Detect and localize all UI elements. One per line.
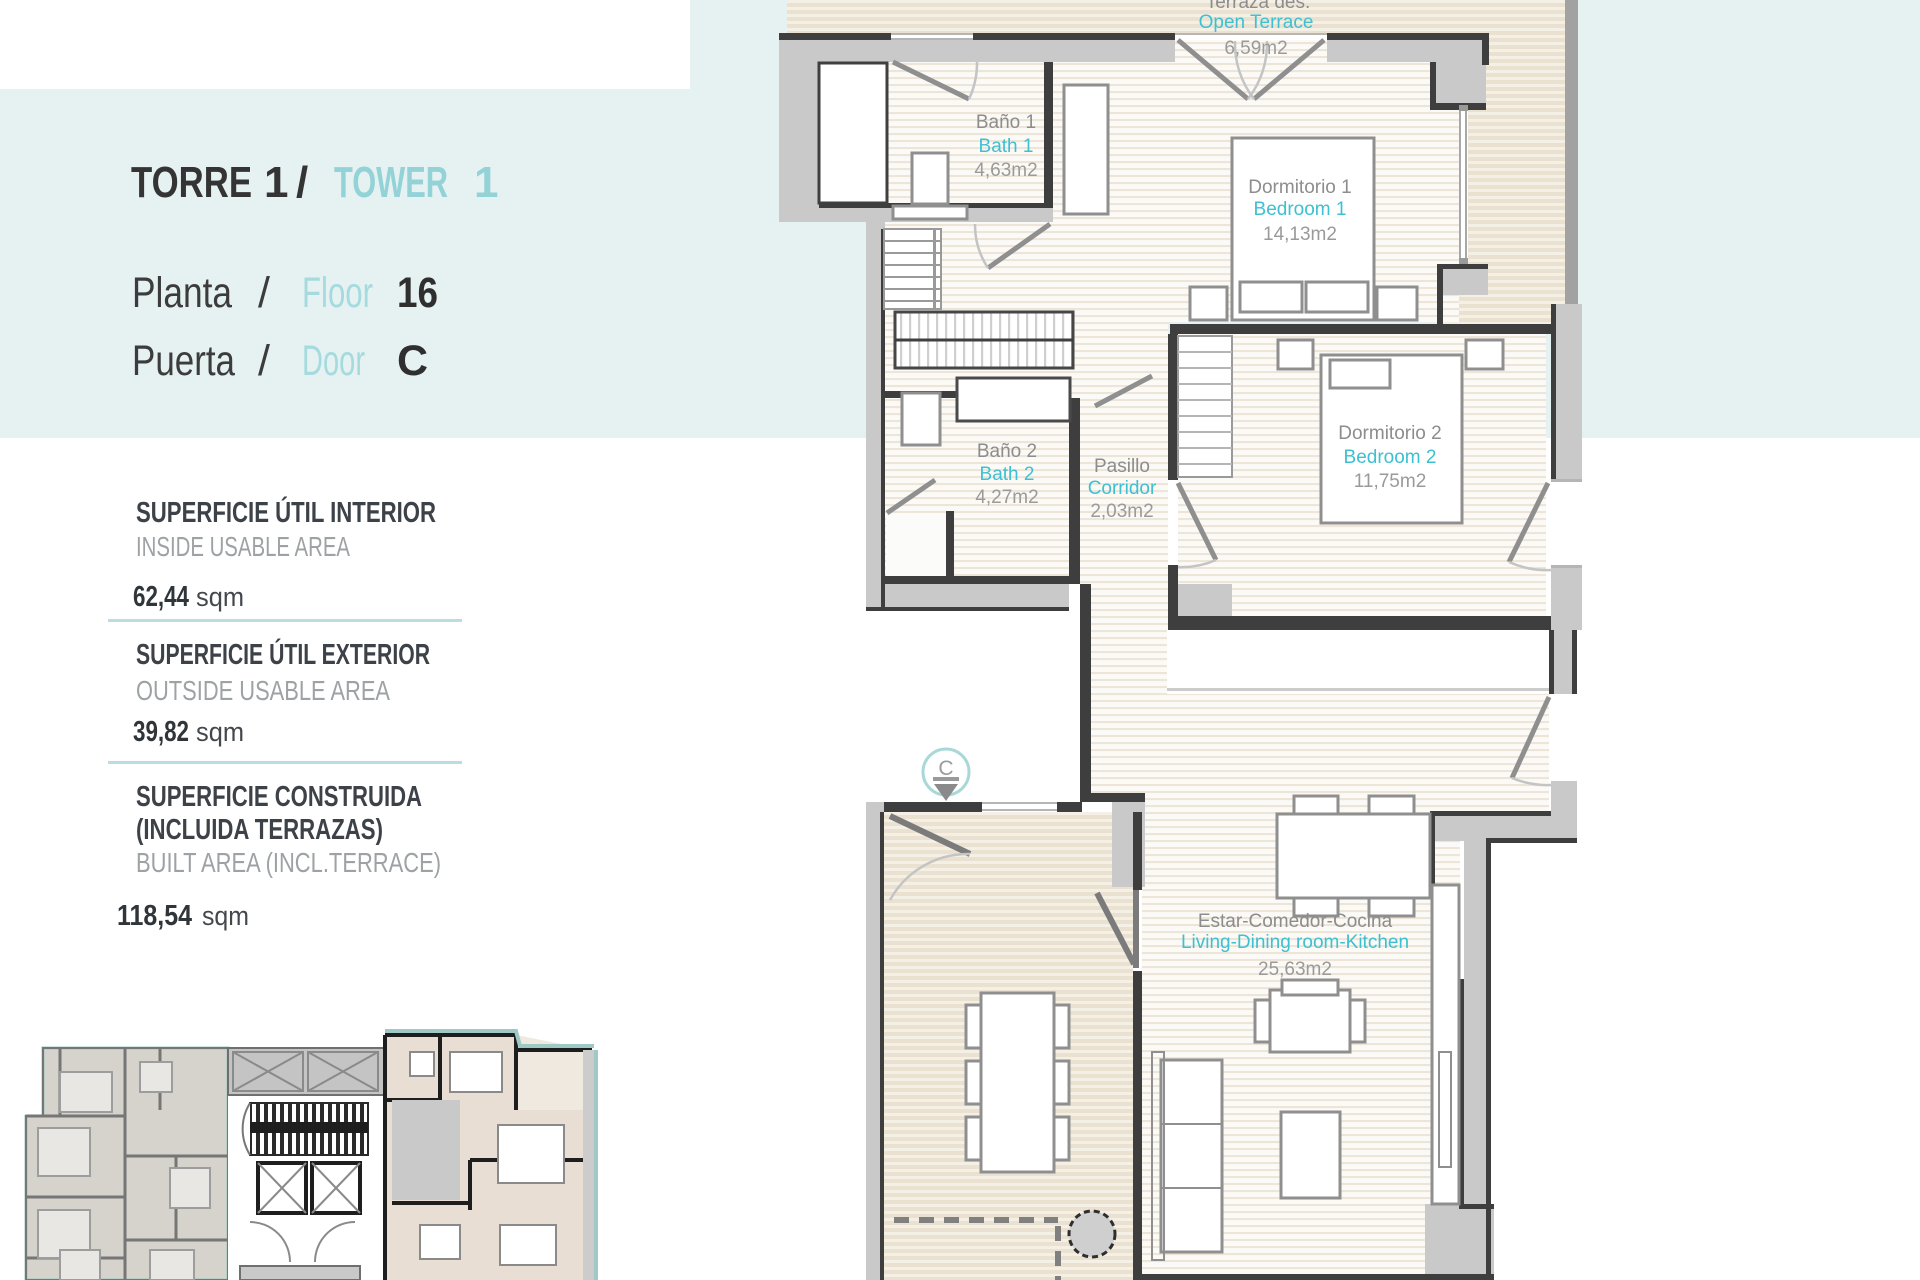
svg-text:Door: Door	[302, 337, 365, 385]
svg-text:1: 1	[264, 158, 288, 207]
svg-text:SUPERFICIE ÚTIL INTERIOR: SUPERFICIE ÚTIL INTERIOR	[136, 495, 436, 529]
svg-text:Bedroom 1: Bedroom 1	[1254, 199, 1347, 220]
svg-text:sqm: sqm	[202, 901, 249, 931]
svg-text:TOWER: TOWER	[334, 158, 448, 207]
svg-text:SUPERFICIE CONSTRUIDA: SUPERFICIE CONSTRUIDA	[136, 781, 422, 813]
svg-text:BUILT AREA (INCL.TERRACE): BUILT AREA (INCL.TERRACE)	[136, 847, 441, 878]
svg-text:Bedroom 2: Bedroom 2	[1344, 447, 1437, 468]
svg-text:sqm: sqm	[196, 582, 244, 612]
svg-text:25,63m2: 25,63m2	[1258, 959, 1332, 980]
svg-text:62,44: 62,44	[133, 581, 189, 613]
svg-text:Living-Dining room-Kitchen: Living-Dining room-Kitchen	[1181, 932, 1409, 953]
svg-text:4,27m2: 4,27m2	[975, 487, 1038, 508]
svg-text:INSIDE USABLE AREA: INSIDE USABLE AREA	[136, 531, 350, 562]
svg-text:SUPERFICIE ÚTIL EXTERIOR: SUPERFICIE ÚTIL EXTERIOR	[136, 637, 430, 671]
svg-text:Bath 2: Bath 2	[980, 464, 1035, 485]
svg-text:39,82: 39,82	[133, 716, 189, 748]
svg-text:118,54: 118,54	[117, 900, 192, 932]
svg-text:OUTSIDE USABLE AREA: OUTSIDE USABLE AREA	[136, 675, 390, 706]
svg-text:16: 16	[397, 269, 438, 317]
svg-text:Puerta: Puerta	[132, 337, 235, 385]
svg-text:14,13m2: 14,13m2	[1263, 224, 1337, 245]
svg-text:Corridor: Corridor	[1088, 478, 1157, 499]
svg-text:Estar-Comedor-Cocina: Estar-Comedor-Cocina	[1198, 911, 1393, 932]
svg-text:6,59m2: 6,59m2	[1224, 38, 1287, 59]
svg-text:Planta: Planta	[132, 269, 232, 317]
svg-text:Pasillo: Pasillo	[1094, 456, 1150, 477]
svg-text:Bath 1: Bath 1	[979, 136, 1034, 157]
svg-text:(INCLUIDA TERRAZAS): (INCLUIDA TERRAZAS)	[136, 814, 383, 846]
svg-text:1: 1	[474, 158, 498, 207]
svg-text:4,63m2: 4,63m2	[974, 160, 1037, 181]
svg-text:/: /	[296, 158, 308, 207]
svg-text:Open Terrace: Open Terrace	[1199, 12, 1314, 33]
svg-text:11,75m2: 11,75m2	[1354, 471, 1427, 492]
svg-text:TORRE: TORRE	[131, 158, 252, 207]
svg-text:2,03m2: 2,03m2	[1090, 501, 1153, 522]
svg-text:sqm: sqm	[196, 717, 244, 747]
svg-text:Dormitorio 1: Dormitorio 1	[1248, 177, 1351, 198]
svg-text:/: /	[258, 269, 270, 317]
svg-text:/: /	[258, 337, 270, 385]
svg-text:Baño 1: Baño 1	[976, 112, 1036, 133]
svg-text:Baño 2: Baño 2	[977, 441, 1037, 462]
svg-text:Floor: Floor	[302, 269, 373, 317]
svg-text:Dormitorio 2: Dormitorio 2	[1338, 423, 1441, 444]
svg-text:C: C	[397, 337, 428, 385]
svg-text:C: C	[938, 757, 953, 780]
